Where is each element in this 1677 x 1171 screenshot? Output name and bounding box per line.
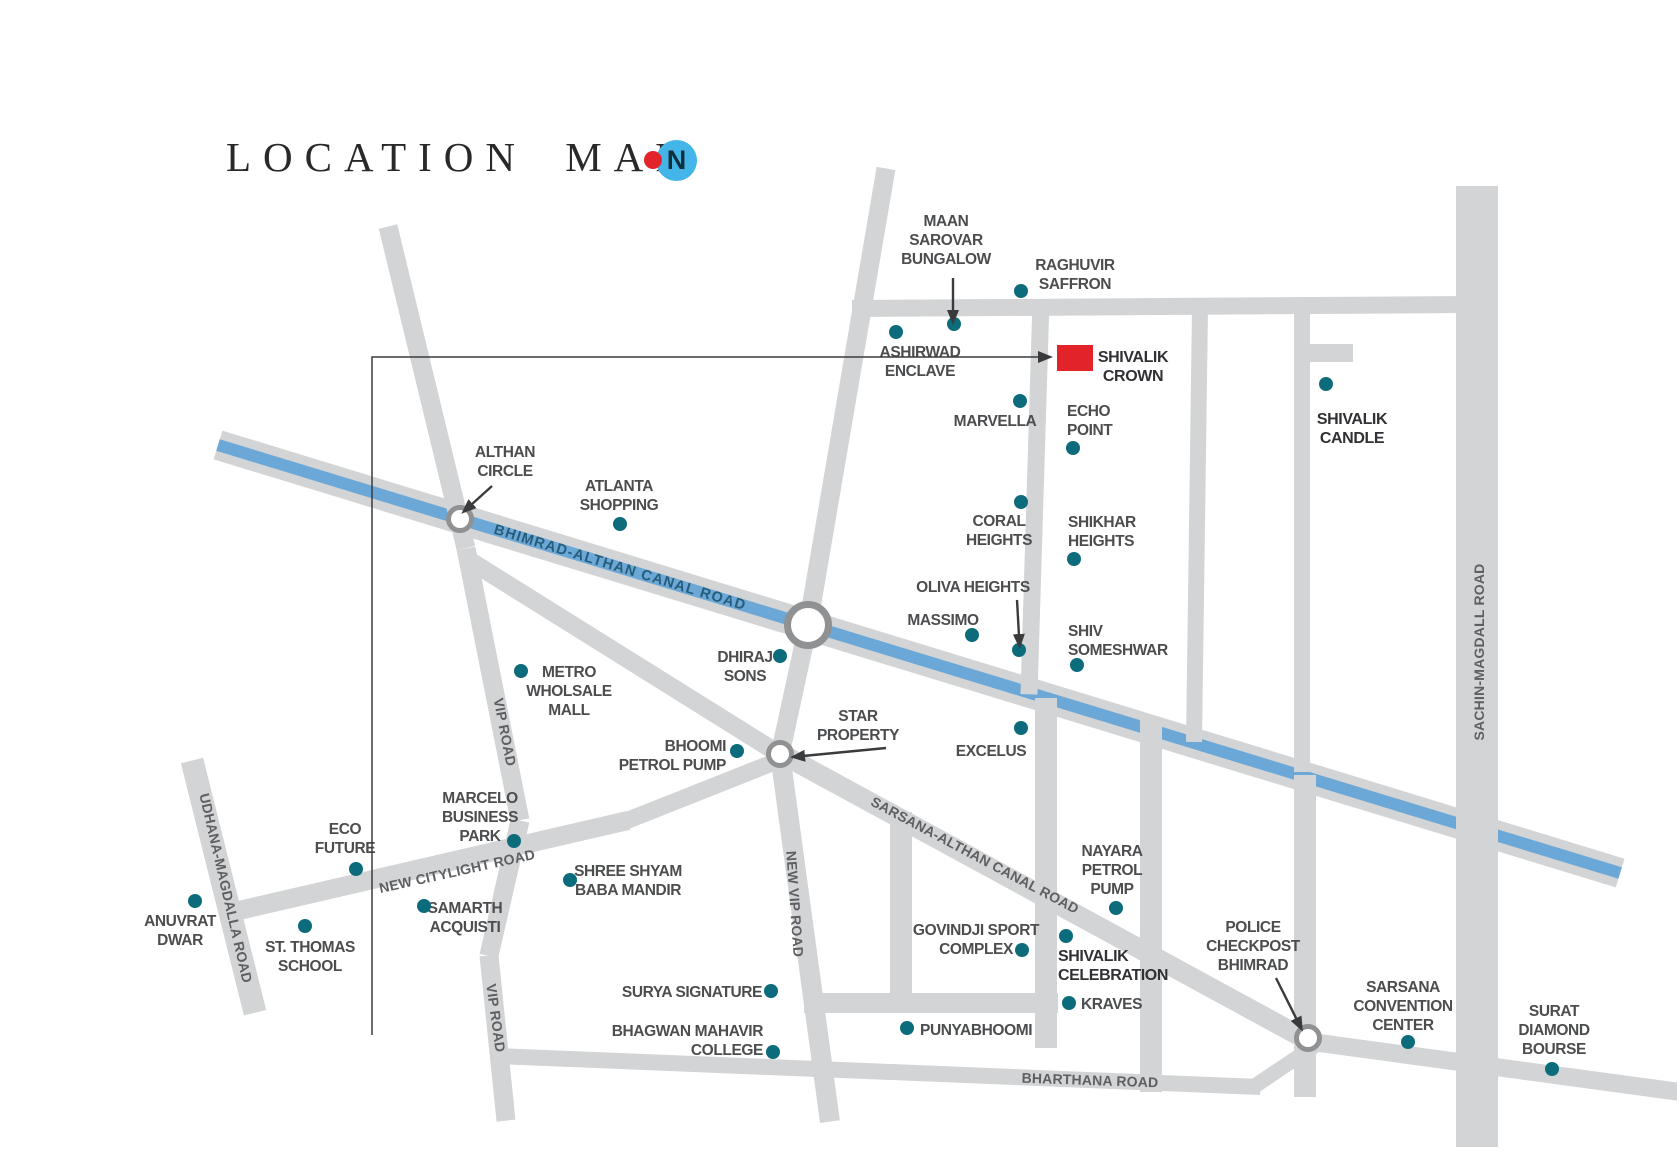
place-raghuvir-saffron: RAGHUVIRSAFFRON — [1035, 256, 1114, 294]
page-title: LOCATION MAP — [226, 133, 690, 181]
location-dot-marvella — [1013, 394, 1027, 408]
road-block-road-3 — [1294, 308, 1310, 772]
place-label-line: MASSIMO — [907, 611, 978, 630]
roundabout-star-property-junction — [766, 740, 794, 768]
location-dot-shivalik-celebration — [1059, 929, 1073, 943]
location-dot-shree-shyam-baba-mandir — [563, 873, 577, 887]
canal-water-stripe — [216, 439, 1621, 878]
place-label-line: BOURSE — [1518, 1040, 1589, 1059]
place-atlanta-shopping: ATLANTASHOPPING — [580, 477, 659, 515]
place-oliva-heights: OLIVA HEIGHTS — [916, 578, 1030, 597]
place-metro-wholsale-mall: METROWHOLSALEMALL — [526, 663, 612, 720]
place-label-line: BUNGALOW — [901, 250, 991, 269]
location-dot-marcelo-business-park — [507, 834, 521, 848]
place-althan-circle: ALTHANCIRCLE — [475, 443, 535, 481]
place-punyabhoomi: PUNYABHOOMI — [920, 1021, 1032, 1040]
place-label-line: CIRCLE — [475, 462, 535, 481]
place-star-property: STARPROPERTY — [817, 707, 899, 745]
place-label-line: SAMARTH — [428, 899, 503, 918]
place-nayara-petrol-pump: NAYARAPETROLPUMP — [1081, 842, 1142, 899]
location-dot-shivalik-candle — [1319, 377, 1333, 391]
place-label-line: GOVINDJI SPORT — [913, 921, 1039, 940]
place-shikhar-heights: SHIKHARHEIGHTS — [1068, 513, 1136, 551]
place-label-line: NAYARA — [1081, 842, 1142, 861]
place-label-line: KRAVES — [1081, 995, 1142, 1014]
road-top-road — [852, 296, 1472, 317]
location-dot-shikhar-heights — [1067, 552, 1081, 566]
place-label-line: CENTER — [1353, 1016, 1452, 1035]
road-label-udhana-magdalla-road: UDHANA-MAGDALLA ROAD — [196, 792, 255, 985]
location-dot-govindji-sport-complex — [1015, 943, 1029, 957]
location-dot-maan-sarovar-bungalow — [947, 317, 961, 331]
arrow-star-property-arrow — [803, 748, 886, 756]
place-label-line: DHIRAJ — [717, 648, 772, 667]
place-label-line: PROPERTY — [817, 726, 899, 745]
road-candle-stub — [1302, 344, 1353, 362]
place-surya-signature: SURYA SIGNATURE — [622, 983, 762, 1002]
place-label-line: OLIVA HEIGHTS — [916, 578, 1030, 597]
place-label-line: SURAT — [1518, 1002, 1589, 1021]
place-label-line: STAR — [817, 707, 899, 726]
place-label-line: COLLEGE — [612, 1041, 763, 1060]
location-dot-nayara-petrol-pump — [1109, 901, 1123, 915]
location-dot-bhagwan-mahavir-college — [766, 1045, 780, 1059]
place-label-line: ENCLAVE — [880, 362, 961, 381]
place-shree-shyam-baba-mandir: SHREE SHYAMBABA MANDIR — [574, 862, 682, 900]
road-block-road-2 — [1186, 308, 1208, 742]
location-dot-metro-wholsale-mall — [514, 664, 528, 678]
place-label-line: DWAR — [144, 931, 216, 950]
place-label-line: ECO — [315, 820, 375, 839]
roundabout-canal-junction — [784, 601, 832, 649]
place-label-line: PUMP — [1081, 880, 1142, 899]
place-label-line: ASHIRWAD — [880, 343, 961, 362]
road-label-bharthana-road: BHARTHANA ROAD — [1021, 1070, 1158, 1091]
road-label-sachin-magdall-road: SACHIN-MAGDALL ROAD — [1471, 564, 1487, 741]
place-label-line: SHOPPING — [580, 496, 659, 515]
place-label-line: CANDLE — [1317, 429, 1387, 448]
arrow-oliva-heights-arrow — [1017, 600, 1019, 636]
place-label-line: ATLANTA — [580, 477, 659, 496]
roundabout-althan-circle — [446, 505, 474, 533]
place-label-line: SCHOOL — [265, 957, 355, 976]
place-label-line: SHIVALIK — [1058, 947, 1168, 966]
place-label-line: BHIMRAD — [1206, 956, 1300, 975]
place-label-line: SHIVALIK — [1317, 410, 1387, 429]
compass-red-dot — [644, 151, 662, 169]
place-label-line: SHIVALIK — [1098, 348, 1168, 367]
place-shivalik-candle: SHIVALIKCANDLE — [1317, 410, 1387, 448]
place-st-thomas-school: ST. THOMASSCHOOL — [265, 938, 355, 976]
place-shivalik-celebration: SHIVALIKCELEBRATION — [1058, 947, 1168, 985]
location-dot-st-thomas-school — [298, 919, 312, 933]
location-dot-raghuvir-saffron — [1014, 284, 1028, 298]
place-label-line: SHIKHAR — [1068, 513, 1136, 532]
place-label-line: WHOLSALE — [526, 682, 612, 701]
place-excelus: EXCELUS — [956, 742, 1026, 761]
location-dot-surya-signature — [764, 984, 778, 998]
location-dot-bhoomi-petrol-pump — [730, 744, 744, 758]
place-label-line: FUTURE — [315, 839, 375, 858]
road-punyabhoomi-road — [804, 993, 1058, 1013]
place-eco-future: ECOFUTURE — [315, 820, 375, 858]
road-celebration-east — [1140, 720, 1162, 1092]
place-label-line: BHAGWAN MAHAVIR — [612, 1022, 763, 1041]
place-marvella: MARVELLA — [954, 412, 1037, 431]
place-surat-diamond-bourse: SURATDIAMONDBOURSE — [1518, 1002, 1589, 1059]
place-label-line: SOMESHWAR — [1068, 641, 1168, 660]
place-bhoomi-petrol-pump: BHOOMIPETROL PUMP — [619, 737, 726, 775]
place-maan-sarovar-bungalow: MAANSAROVARBUNGALOW — [901, 212, 991, 269]
place-echo-point: ECHOPOINT — [1067, 402, 1112, 440]
location-dot-shiv-someshwar — [1070, 658, 1084, 672]
place-coral-heights: CORALHEIGHTS — [966, 512, 1032, 550]
place-bhagwan-mahavir-college: BHAGWAN MAHAVIRCOLLEGE — [612, 1022, 763, 1060]
location-dot-excelus — [1014, 721, 1028, 735]
shivalik-crown-marker — [1057, 345, 1093, 371]
location-dot-echo-point — [1066, 441, 1080, 455]
place-label-line: ANUVRAT — [144, 912, 216, 931]
location-dot-ashirwad-enclave — [889, 325, 903, 339]
place-label-line: SONS — [717, 667, 772, 686]
place-kraves: KRAVES — [1081, 995, 1142, 1014]
place-label-line: CORAL — [966, 512, 1032, 531]
place-dhiraj-sons: DHIRAJSONS — [717, 648, 772, 686]
place-label-line: MAAN — [901, 212, 991, 231]
place-label-line: SAFFRON — [1035, 275, 1114, 294]
location-dot-dhiraj-sons — [773, 649, 787, 663]
location-dot-oliva-heights — [1012, 643, 1026, 657]
place-label-line: MARVELLA — [954, 412, 1037, 431]
roundabout-police-checkpost-junction — [1294, 1024, 1322, 1052]
place-label-line: SAROVAR — [901, 231, 991, 250]
location-map: LOCATION MAP N BHIMRAD-ALTHAN CANAL ROAD… — [0, 0, 1677, 1171]
place-label-line: CHECKPOST — [1206, 937, 1300, 956]
place-anuvrat-dwar: ANUVRATDWAR — [144, 912, 216, 950]
location-dot-eco-future — [349, 862, 363, 876]
location-dot-anuvrat-dwar — [188, 894, 202, 908]
location-dot-kraves — [1062, 996, 1076, 1010]
place-label-line: MALL — [526, 701, 612, 720]
place-label-line: METRO — [526, 663, 612, 682]
place-label-line: POLICE — [1206, 918, 1300, 937]
place-label-line: CROWN — [1098, 367, 1168, 386]
place-label-line: BHOOMI — [619, 737, 726, 756]
place-label-line: CONVENTION — [1353, 997, 1452, 1016]
place-label-line: ST. THOMAS — [265, 938, 355, 957]
place-label-line: PUNYABHOOMI — [920, 1021, 1032, 1040]
place-massimo: MASSIMO — [907, 611, 978, 630]
place-shivalik-crown: SHIVALIKCROWN — [1098, 348, 1168, 386]
place-label-line: POINT — [1067, 421, 1112, 440]
compass-north-badge: N — [656, 140, 697, 181]
location-dot-massimo — [965, 628, 979, 642]
location-dot-coral-heights — [1014, 495, 1028, 509]
place-label-line: RAGHUVIR — [1035, 256, 1114, 275]
place-shiv-someshwar: SHIVSOMESHWAR — [1068, 622, 1168, 660]
place-label-line: SHIV — [1068, 622, 1168, 641]
place-label-line: EXCELUS — [956, 742, 1026, 761]
place-police-checkpost-bhimrad: POLICECHECKPOSTBHIMRAD — [1206, 918, 1300, 975]
road-govindji-west — [890, 812, 912, 1006]
place-label-line: MARCELO — [442, 789, 518, 808]
place-label-line: SHREE SHYAM — [574, 862, 682, 881]
location-dot-sarsana-convention-center — [1401, 1035, 1415, 1049]
road-north-approach — [799, 166, 896, 626]
place-samarth-acquisti: SAMARTHACQUISTI — [428, 899, 503, 937]
location-dot-punyabhoomi — [900, 1021, 914, 1035]
place-label-line: PETROL — [1081, 861, 1142, 880]
location-dot-surat-diamond-bourse — [1545, 1062, 1559, 1076]
place-sarsana-convention-center: SARSANACONVENTIONCENTER — [1353, 978, 1452, 1035]
place-label-line: ECHO — [1067, 402, 1112, 421]
place-label-line: PETROL PUMP — [619, 756, 726, 775]
place-label-line: DIAMOND — [1518, 1021, 1589, 1040]
location-dot-atlanta-shopping — [613, 517, 627, 531]
place-label-line: ACQUISTI — [428, 918, 503, 937]
place-label-line: HEIGHTS — [966, 531, 1032, 550]
place-label-line: SURYA SIGNATURE — [622, 983, 762, 1002]
arrow-althan-circle-arrow — [471, 486, 492, 505]
place-label-line: BABA MANDIR — [574, 881, 682, 900]
compass-north-letter: N — [656, 140, 697, 181]
place-label-line: HEIGHTS — [1068, 532, 1136, 551]
place-label-line: SARSANA — [1353, 978, 1452, 997]
place-ashirwad-enclave: ASHIRWADENCLAVE — [880, 343, 961, 381]
place-label-line: BUSINESS — [442, 808, 518, 827]
place-label-line: CELEBRATION — [1058, 966, 1168, 985]
place-label-line: ALTHAN — [475, 443, 535, 462]
location-dot-samarth-acquisti — [417, 899, 431, 913]
